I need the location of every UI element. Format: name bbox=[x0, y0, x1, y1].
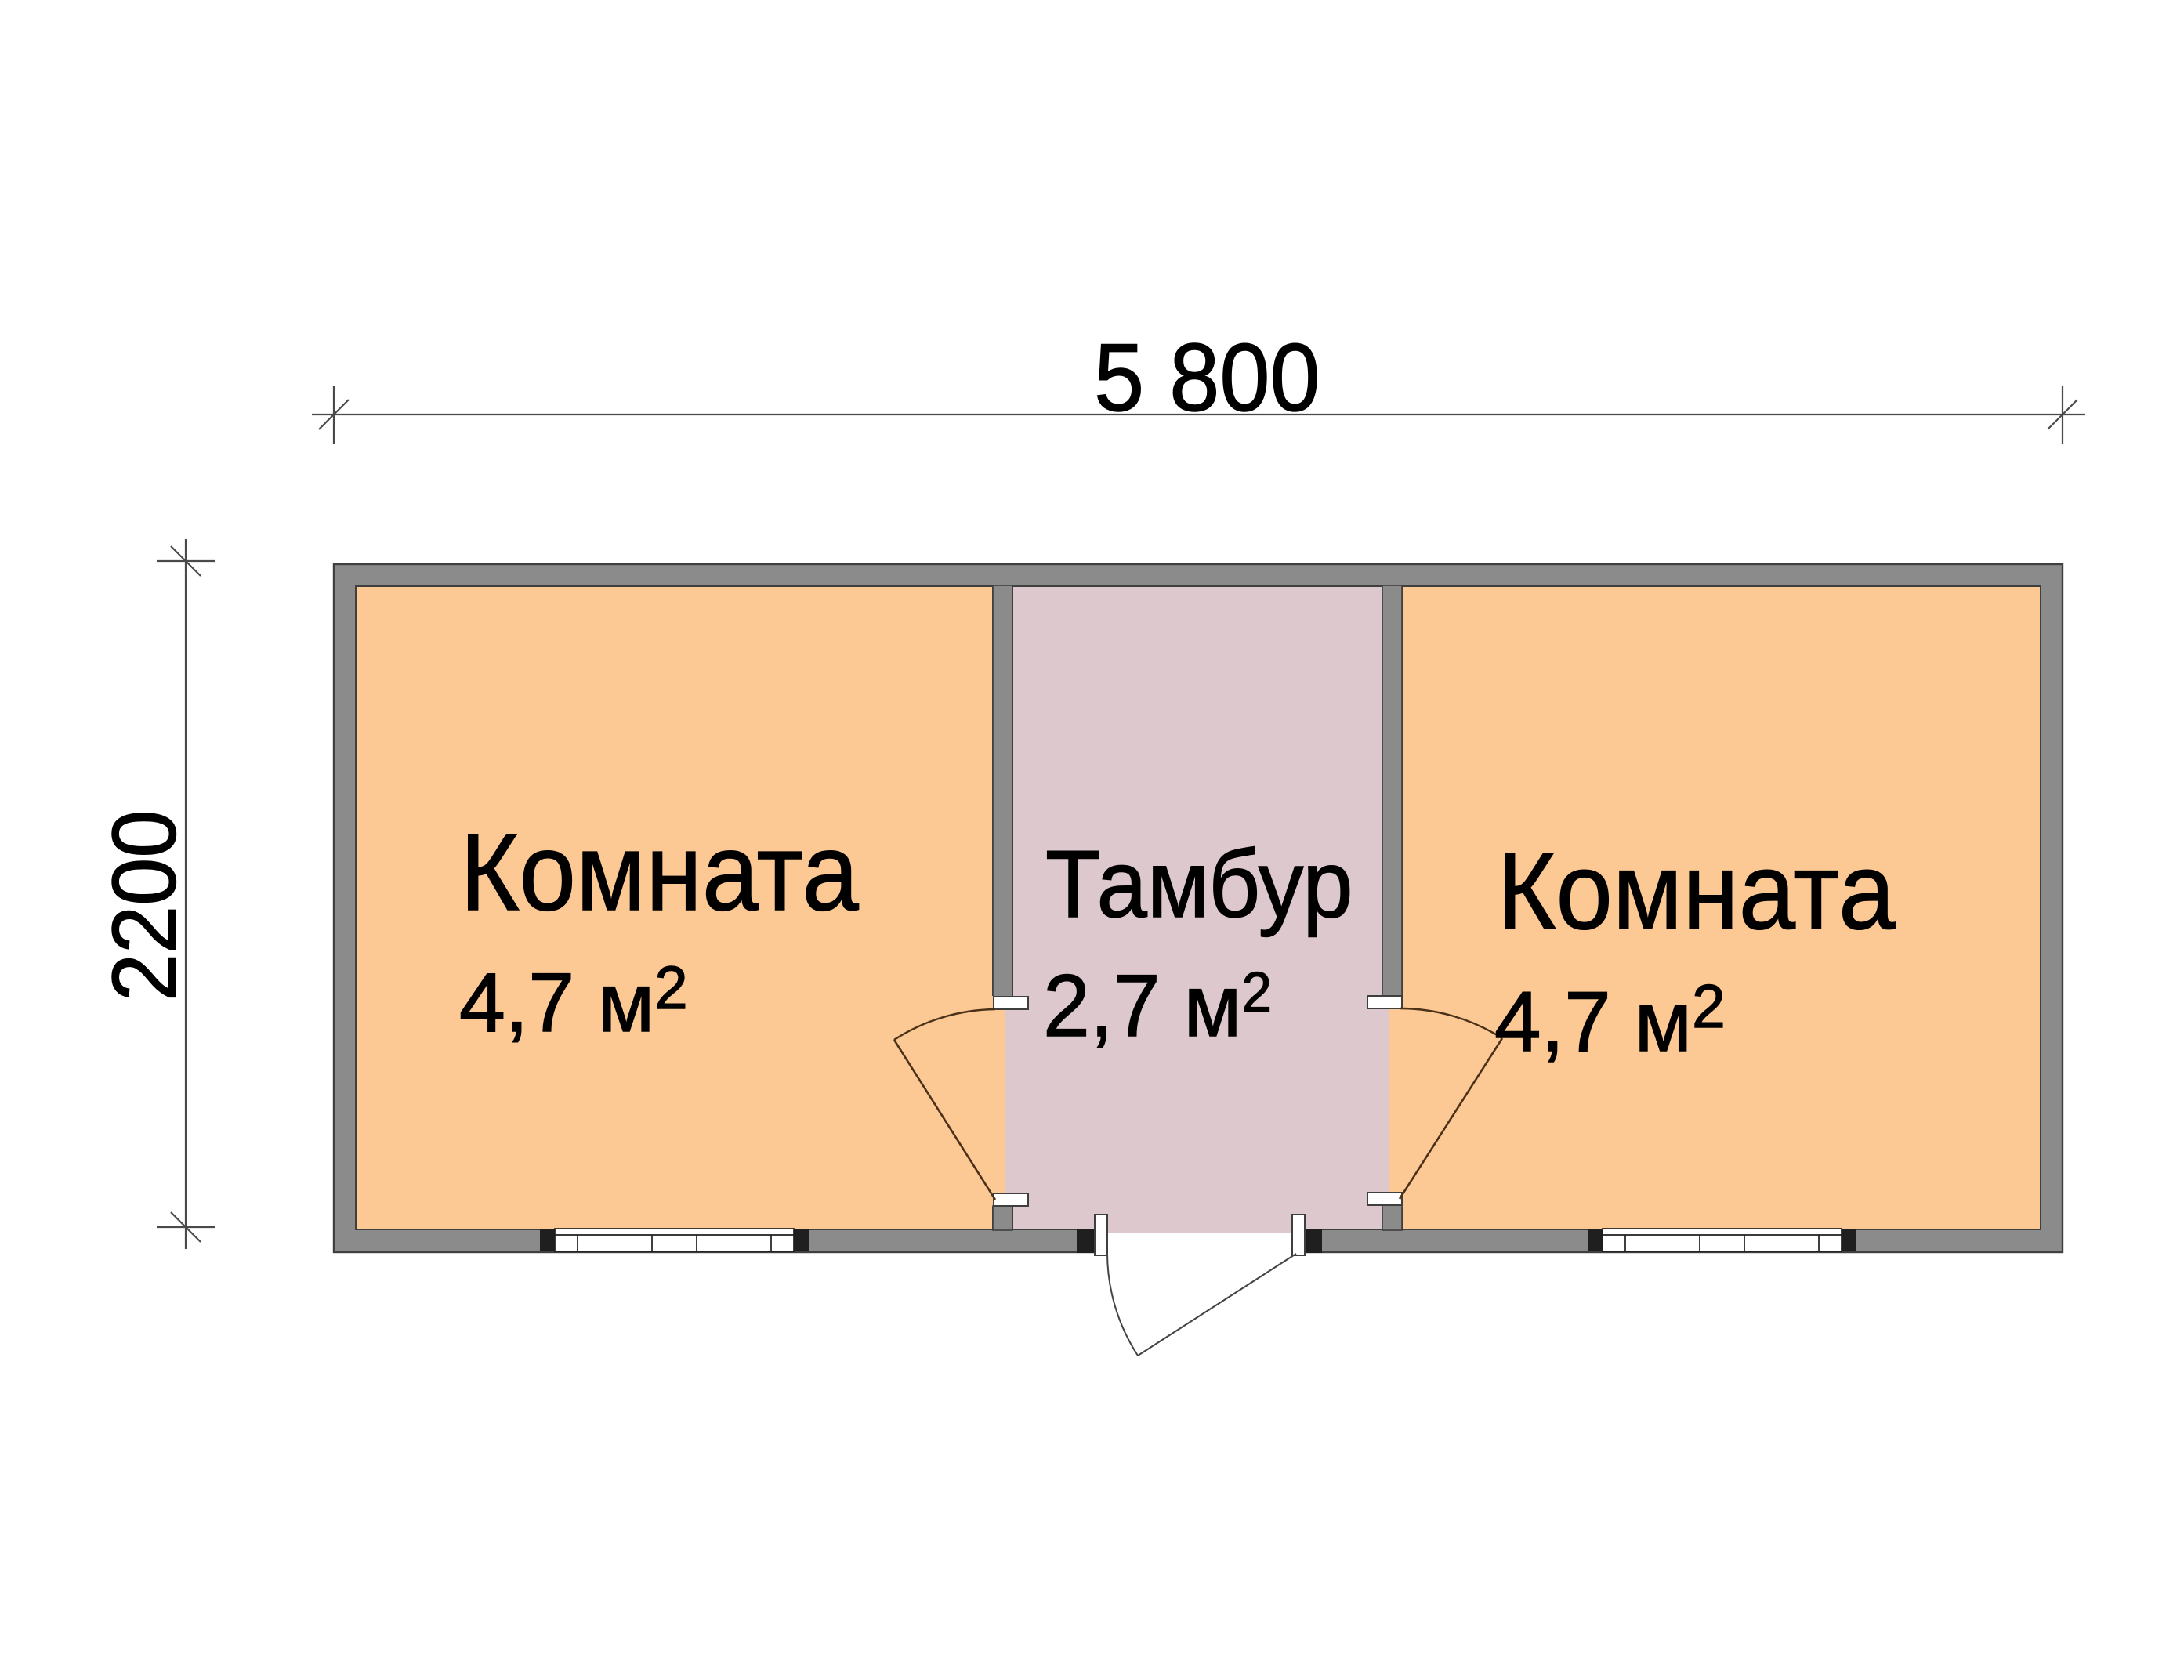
svg-text:4,7 м2: 4,7 м2 bbox=[459, 955, 688, 1050]
svg-text:5 800: 5 800 bbox=[1094, 324, 1320, 432]
svg-text:4,7 м2: 4,7 м2 bbox=[1494, 972, 1726, 1069]
svg-text:2,7 м2: 2,7 м2 bbox=[1043, 958, 1272, 1055]
svg-text:Комната: Комната bbox=[460, 811, 860, 934]
svg-text:2200: 2200 bbox=[93, 809, 194, 1001]
svg-text:Тамбур: Тамбур bbox=[1045, 831, 1353, 938]
svg-text:Комната: Комната bbox=[1497, 830, 1896, 952]
